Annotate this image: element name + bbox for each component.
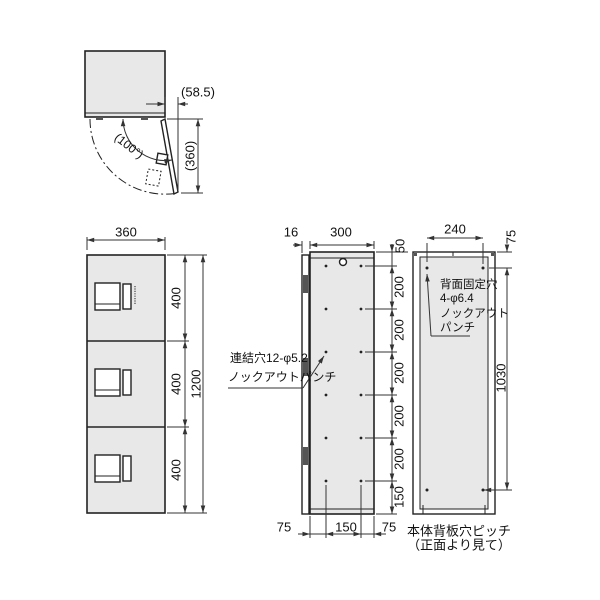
caption-back-panel-pitch-line1: 本体背板穴ピッチ xyxy=(407,525,511,538)
top-view-body xyxy=(85,51,165,117)
dim-pitch-4: 200 xyxy=(393,405,406,427)
annotation-link-hole-line1: 連結穴12-φ5.2 xyxy=(230,352,308,364)
dim-door-projection: (58.5) xyxy=(181,86,215,99)
lock-unit xyxy=(95,369,120,396)
door-lock-box xyxy=(156,153,168,165)
annotation-back-fixing-line2: 4-φ6.4 xyxy=(440,294,474,306)
dim-top-offset: 50 xyxy=(394,239,407,253)
dim-total-height: 1200 xyxy=(190,370,203,399)
annotation-back-fixing-line4: パンチ xyxy=(440,323,475,335)
hanger-hole xyxy=(340,259,347,266)
dim-bottom-center: 150 xyxy=(335,521,357,534)
dim-back-hole-span: 240 xyxy=(444,223,466,236)
lock-unit xyxy=(95,455,120,482)
lock-unit xyxy=(95,283,120,310)
dim-back-hole-pitch: 1030 xyxy=(495,364,508,393)
annotation-back-fixing-line1: 背面固定穴 xyxy=(440,280,498,292)
name-card-strip xyxy=(123,284,131,309)
name-card-strip xyxy=(123,370,131,395)
lock-side-mark xyxy=(303,275,308,293)
top-view-drawing xyxy=(85,51,203,194)
hinge-mark xyxy=(96,117,103,120)
caption-back-panel-pitch-line2: （正面より見て） xyxy=(407,539,511,552)
dim-pitch-1: 200 xyxy=(393,276,406,298)
dim-pitch-5: 200 xyxy=(393,448,406,470)
dim-pitch-2: 200 xyxy=(393,319,406,341)
annotation-link-hole-line2: ノックアウトパンチ xyxy=(228,371,336,383)
door-handle-hidden-outline xyxy=(146,169,161,186)
hinge-mark xyxy=(141,117,148,120)
dim-bottom-offset: 150 xyxy=(393,486,406,508)
dim-door-thickness: 16 xyxy=(284,226,298,239)
dim-bottom-margin-left: 75 xyxy=(277,521,291,534)
dim-section-height-3: 400 xyxy=(170,459,183,481)
dim-body-depth: 300 xyxy=(330,226,352,239)
dim-back-top-offset: 75 xyxy=(505,230,518,244)
dim-front-width: 360 xyxy=(115,226,137,239)
annotation-back-fixing-line3: ノックアウト xyxy=(440,309,509,321)
dim-bottom-margin-right: 75 xyxy=(382,521,396,534)
dim-door-width-open: (360) xyxy=(184,141,197,171)
dim-section-height-1: 400 xyxy=(170,287,183,309)
lock-side-mark xyxy=(303,447,308,465)
drawing-linework xyxy=(0,0,600,600)
name-card-strip xyxy=(123,456,131,481)
side-view-drawing xyxy=(228,241,408,538)
dim-pitch-3: 200 xyxy=(393,362,406,384)
technical-drawing-canvas: (58.5) (360) (100°) 360 400 400 400 1200… xyxy=(0,0,600,600)
dim-section-height-2: 400 xyxy=(170,373,183,395)
